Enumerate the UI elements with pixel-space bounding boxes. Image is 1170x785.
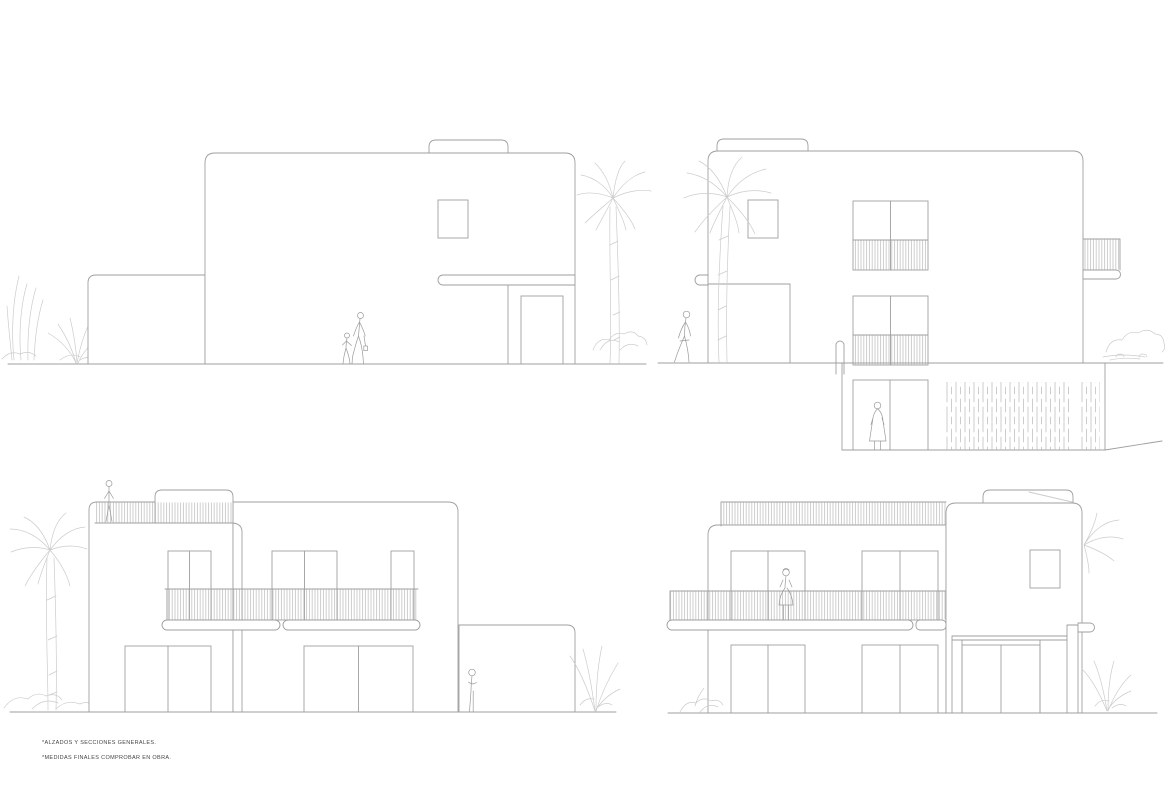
elevation-bottom-right: [667, 490, 1157, 713]
railing-balusters: [854, 336, 928, 365]
walking-person: [675, 311, 691, 362]
side-wing: [88, 275, 205, 364]
bush: [593, 332, 647, 350]
garage-slat-door: [943, 382, 1072, 450]
rock: [2, 352, 36, 359]
woman-figure: [870, 402, 887, 450]
railing-balusters: [854, 241, 928, 270]
main-building: [205, 153, 575, 364]
palm-trunk: [610, 207, 620, 363]
railing-balusters: [165, 590, 418, 620]
entry-canopy: [438, 275, 575, 285]
garage-tower: [946, 503, 1082, 713]
drawing-canvas: [0, 0, 1170, 785]
balcony-slab: [283, 620, 420, 630]
plants-right: [570, 646, 620, 711]
basement-level: [842, 363, 1162, 450]
porch-canopy: [695, 275, 708, 285]
railing-balusters: [670, 592, 946, 620]
grass-plant: [7, 276, 43, 360]
palm-tree: [4, 513, 94, 710]
railing-balusters: [1083, 240, 1120, 270]
balcony-slab: [916, 620, 946, 630]
palm-tree: [577, 161, 651, 363]
palm-fronds: [577, 161, 651, 230]
palm-trunk: [46, 558, 57, 710]
elevation-bottom-left: [4, 481, 620, 713]
plants-right: [1082, 661, 1131, 711]
garage-slat-panel: [1078, 382, 1100, 450]
palm-behind-tower: [1084, 513, 1123, 573]
palm-fronds: [10, 513, 87, 586]
elevation-top-left: [2, 140, 651, 364]
tower-parapet: [983, 490, 1073, 503]
footnote-line: *ALZADOS Y SECCIONES GENERALES.: [42, 740, 156, 746]
roof-terrace-railing: [721, 502, 946, 526]
balcony-slab: [667, 620, 913, 630]
elevation-top-right: [658, 139, 1165, 450]
railing-balusters: [95, 503, 233, 523]
balcony-slab: [1083, 270, 1121, 279]
vegetation-left: [2, 276, 102, 363]
footnote-line: *MEDIDAS FINALES COMPROBAR EN OBRA.: [42, 755, 171, 761]
basement-door: [853, 380, 928, 450]
drawing-sheet: *ALZADOS Y SECCIONES GENERALES. *MEDIDAS…: [0, 0, 1170, 785]
balcony: [162, 589, 420, 630]
balcony-slab: [162, 620, 280, 630]
pilaster-cap: [1078, 623, 1095, 632]
roof-parapet: [717, 139, 808, 151]
roof-parapet: [429, 140, 508, 153]
side-balcony: [1083, 239, 1121, 279]
railing-balusters: [721, 503, 946, 526]
base-bushes: [4, 694, 94, 709]
side-wing: [459, 625, 575, 712]
bush-and-ground-cover: [1103, 330, 1165, 360]
